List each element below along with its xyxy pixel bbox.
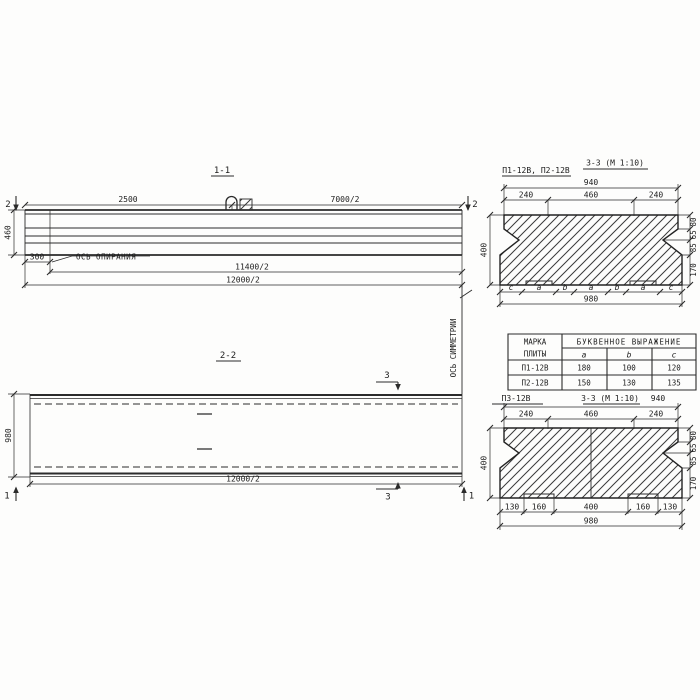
dim-400: 400 <box>480 456 489 471</box>
marker-1-left: 1 <box>4 492 9 502</box>
marker-2-left: 2 <box>5 200 10 210</box>
dim-240-right: 240 <box>649 410 664 419</box>
dim-240-left: 240 <box>519 191 534 200</box>
letter-b1: b <box>563 283 568 292</box>
dim-980: 980 <box>584 295 599 304</box>
dim-170: 170 <box>689 476 698 490</box>
dim-170: 170 <box>689 263 698 277</box>
dim-940: 940 <box>584 178 599 187</box>
dim-12000-2: 12000/2 <box>226 276 260 285</box>
beam-layer-lines <box>25 210 462 255</box>
dim-980: 980 <box>4 428 13 443</box>
dim-240-right: 240 <box>649 191 664 200</box>
marker-3-bottom-line <box>376 484 398 489</box>
row1-a: 180 <box>577 364 591 373</box>
table-header-mark-2: ПЛИТЫ <box>524 350 547 359</box>
table-row: П1-12В 180 100 120 <box>521 364 681 373</box>
dim-130-1: 130 <box>505 503 520 512</box>
lifting-loop-icon <box>226 197 237 211</box>
row1-mark: П1-12В <box>521 364 549 373</box>
table-col-a: a <box>582 351 587 360</box>
dim-85: 85 <box>689 456 698 465</box>
letter-c1: c <box>509 283 514 292</box>
letter-a2: a <box>589 283 594 292</box>
support-axis-label: ОСЬ ОПИРАНИЯ <box>76 253 136 262</box>
section-3-3-title: 3-3 (М 1:10) <box>586 159 644 168</box>
dim-460: 460 <box>584 191 599 200</box>
plan-thick-edges <box>30 395 462 474</box>
dim-460: 460 <box>584 410 599 419</box>
drawing-canvas: 1-1 2 2 2500 7000/2 460 300 ОСЬ ОПИРАНИЯ… <box>0 0 700 700</box>
dim-980: 980 <box>584 517 599 526</box>
table-row: П2-12В 150 130 135 <box>521 379 680 388</box>
dim-160-1: 160 <box>532 503 547 512</box>
section-3-3-title: 3-3 (М 1:10) <box>581 394 639 403</box>
table-header-mark-1: МАРКА <box>524 338 547 347</box>
letter-a1: a <box>537 283 542 292</box>
symmetry-axis-line <box>460 285 472 394</box>
axis-of-symmetry: ОСЬ СИММЕТРИИ <box>449 285 472 394</box>
cross-section-3-3-bottom: П3-12В 3-3 (М 1:10) 940 240 460 240 400 … <box>480 394 699 530</box>
dim-300: 300 <box>30 253 45 262</box>
marker-3-bottom-arrow <box>395 482 401 489</box>
dim-240-left: 240 <box>519 410 534 419</box>
plate-mark-label: П3-12В <box>502 394 531 403</box>
letter-b2: b <box>615 283 620 292</box>
marker-3-top: 3 <box>384 371 389 381</box>
row2-c: 135 <box>667 379 681 388</box>
dim-130-2: 130 <box>663 503 678 512</box>
marker-1-right: 1 <box>469 492 474 502</box>
marker-1-right-arrow <box>461 487 467 494</box>
row2-a: 150 <box>577 379 591 388</box>
section-1-1-title: 1-1 <box>214 166 230 176</box>
dim-2500: 2500 <box>118 195 137 204</box>
dim-400: 400 <box>480 243 489 258</box>
marker-3-top-line <box>376 382 398 388</box>
marker-3-bottom: 3 <box>385 493 390 503</box>
dim-height-460: 460 <box>4 225 13 240</box>
cross-section-3-3-top: П1-12В, П2-12В 3-3 (М 1:10) 940 240 460 … <box>480 159 699 308</box>
blueprint-page: 1-1 2 2 2500 7000/2 460 300 ОСЬ ОПИРАНИЯ… <box>0 0 700 700</box>
beam-edges <box>25 210 462 255</box>
marker-3-top-arrow <box>395 384 401 391</box>
centerline-dashes <box>197 414 212 449</box>
row2-mark: П2-12В <box>521 379 549 388</box>
table-col-b: b <box>627 351 632 360</box>
dim-400-bottom: 400 <box>584 503 599 512</box>
dim-940: 940 <box>651 394 666 403</box>
dim-11400-2: 11400/2 <box>235 263 269 272</box>
section-2-2-title: 2-2 <box>220 351 236 361</box>
slab-cross-section-body <box>500 215 682 285</box>
table-col-c: c <box>672 351 677 360</box>
letter-values-table: МАРКА ПЛИТЫ БУКВЕННОЕ ВЫРАЖЕНИЕ a b c П1… <box>508 334 696 390</box>
symmetry-axis-label: ОСЬ СИММЕТРИИ <box>449 319 458 378</box>
letter-c2: c <box>669 283 674 292</box>
loop-anchor-plate <box>240 199 252 210</box>
dim-80: 80 <box>689 431 698 441</box>
marker-2-right: 2 <box>472 200 477 210</box>
hidden-lines-dashed <box>34 404 458 467</box>
section-2-2: 2-2 980 12000/2 3 3 1 1 <box>4 351 474 503</box>
table-header-span: БУКВЕННОЕ ВЫРАЖЕНИЕ <box>577 338 682 347</box>
row2-b: 130 <box>622 379 636 388</box>
dim-7000-2: 7000/2 <box>331 195 360 204</box>
marker-1-left-arrow <box>13 487 19 494</box>
row1-b: 100 <box>622 364 636 373</box>
plan-thin-edges <box>30 394 462 477</box>
plate-marks-label: П1-12В, П2-12В <box>502 166 570 175</box>
dim-80: 80 <box>689 217 698 227</box>
letter-a3: a <box>641 283 646 292</box>
dim-65: 65 <box>689 230 698 239</box>
dim-160-2: 160 <box>636 503 651 512</box>
dim-85: 85 <box>689 243 698 252</box>
section-1-1: 1-1 2 2 2500 7000/2 460 300 ОСЬ ОПИРАНИЯ… <box>4 166 478 288</box>
row1-c: 120 <box>667 364 681 373</box>
dim-12000-2: 12000/2 <box>226 475 260 484</box>
dim-65: 65 <box>689 443 698 452</box>
